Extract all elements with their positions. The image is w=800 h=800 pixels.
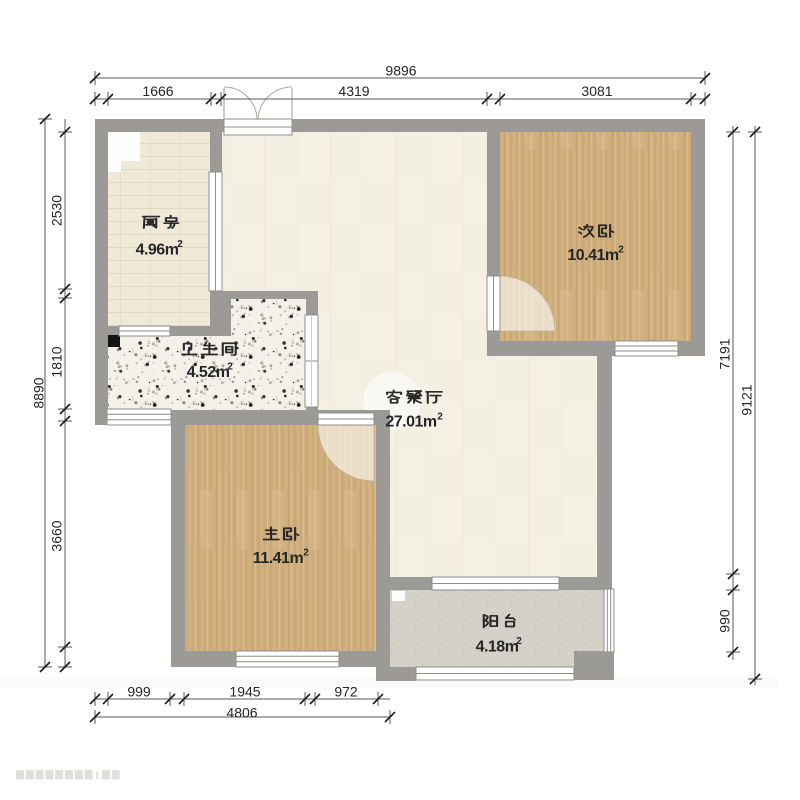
svg-text:4.18m: 4.18m xyxy=(476,639,519,656)
svg-text:4319: 4319 xyxy=(338,83,369,99)
svg-text:8890: 8890 xyxy=(31,377,47,408)
svg-text:2: 2 xyxy=(177,239,183,250)
svg-text:2: 2 xyxy=(437,412,443,423)
svg-text:11.41m: 11.41m xyxy=(253,550,304,567)
svg-text:4.96m: 4.96m xyxy=(136,242,179,259)
svg-text:1666: 1666 xyxy=(142,83,173,99)
svg-text:27.01m: 27.01m xyxy=(385,414,437,431)
svg-text:3081: 3081 xyxy=(581,83,612,99)
svg-text:972: 972 xyxy=(334,684,358,700)
svg-text:999: 999 xyxy=(127,684,151,700)
svg-text:1810: 1810 xyxy=(49,346,65,377)
svg-text:2: 2 xyxy=(618,245,624,256)
svg-text:2: 2 xyxy=(303,548,309,559)
svg-text:9896: 9896 xyxy=(385,63,416,79)
svg-text:2: 2 xyxy=(227,362,233,373)
svg-text:9121: 9121 xyxy=(739,384,755,415)
svg-text:990: 990 xyxy=(717,609,733,633)
svg-text:3660: 3660 xyxy=(49,520,65,551)
svg-text:2530: 2530 xyxy=(49,195,65,226)
svg-text:4806: 4806 xyxy=(226,705,257,721)
svg-text:10.41m: 10.41m xyxy=(567,247,619,264)
svg-text:7191: 7191 xyxy=(717,338,733,369)
svg-text:4.52m: 4.52m xyxy=(187,364,230,381)
svg-text:1945: 1945 xyxy=(229,684,260,700)
svg-text:2: 2 xyxy=(516,636,522,647)
